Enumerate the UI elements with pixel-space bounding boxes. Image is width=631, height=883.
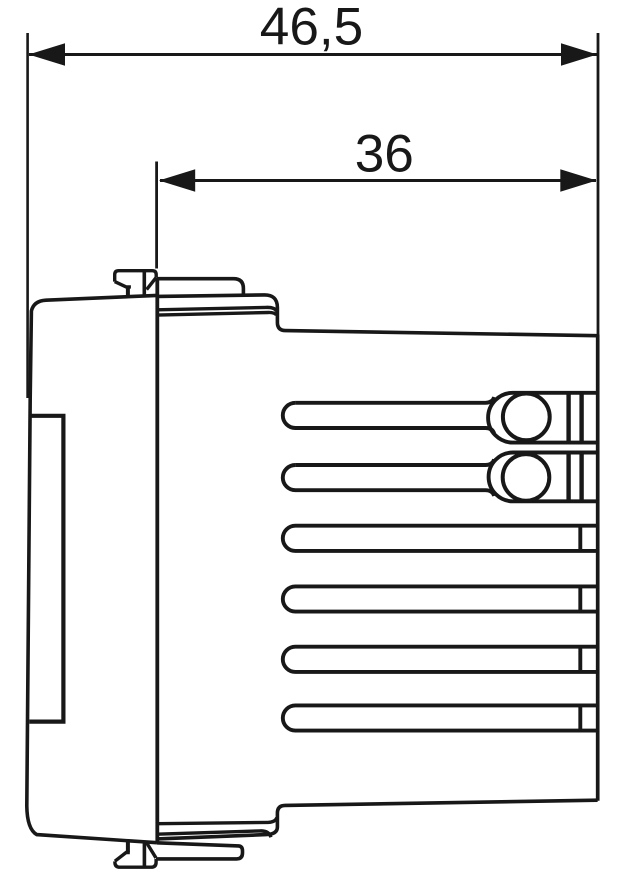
svg-text:36: 36 [355, 125, 414, 184]
svg-text:46,5: 46,5 [260, 0, 364, 57]
